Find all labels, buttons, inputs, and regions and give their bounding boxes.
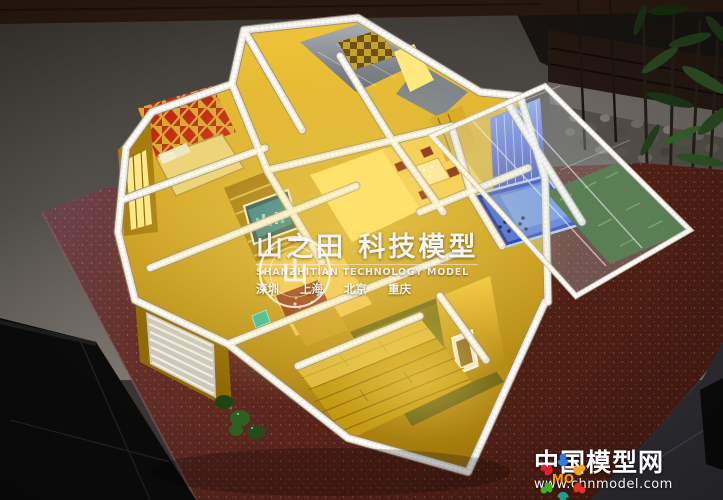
photo-stage: 山 山之田 科技模型 SHANZHITIAN TECHNOLOGY MODEL … (0, 0, 723, 500)
vignette (0, 0, 723, 500)
scene (0, 0, 723, 500)
